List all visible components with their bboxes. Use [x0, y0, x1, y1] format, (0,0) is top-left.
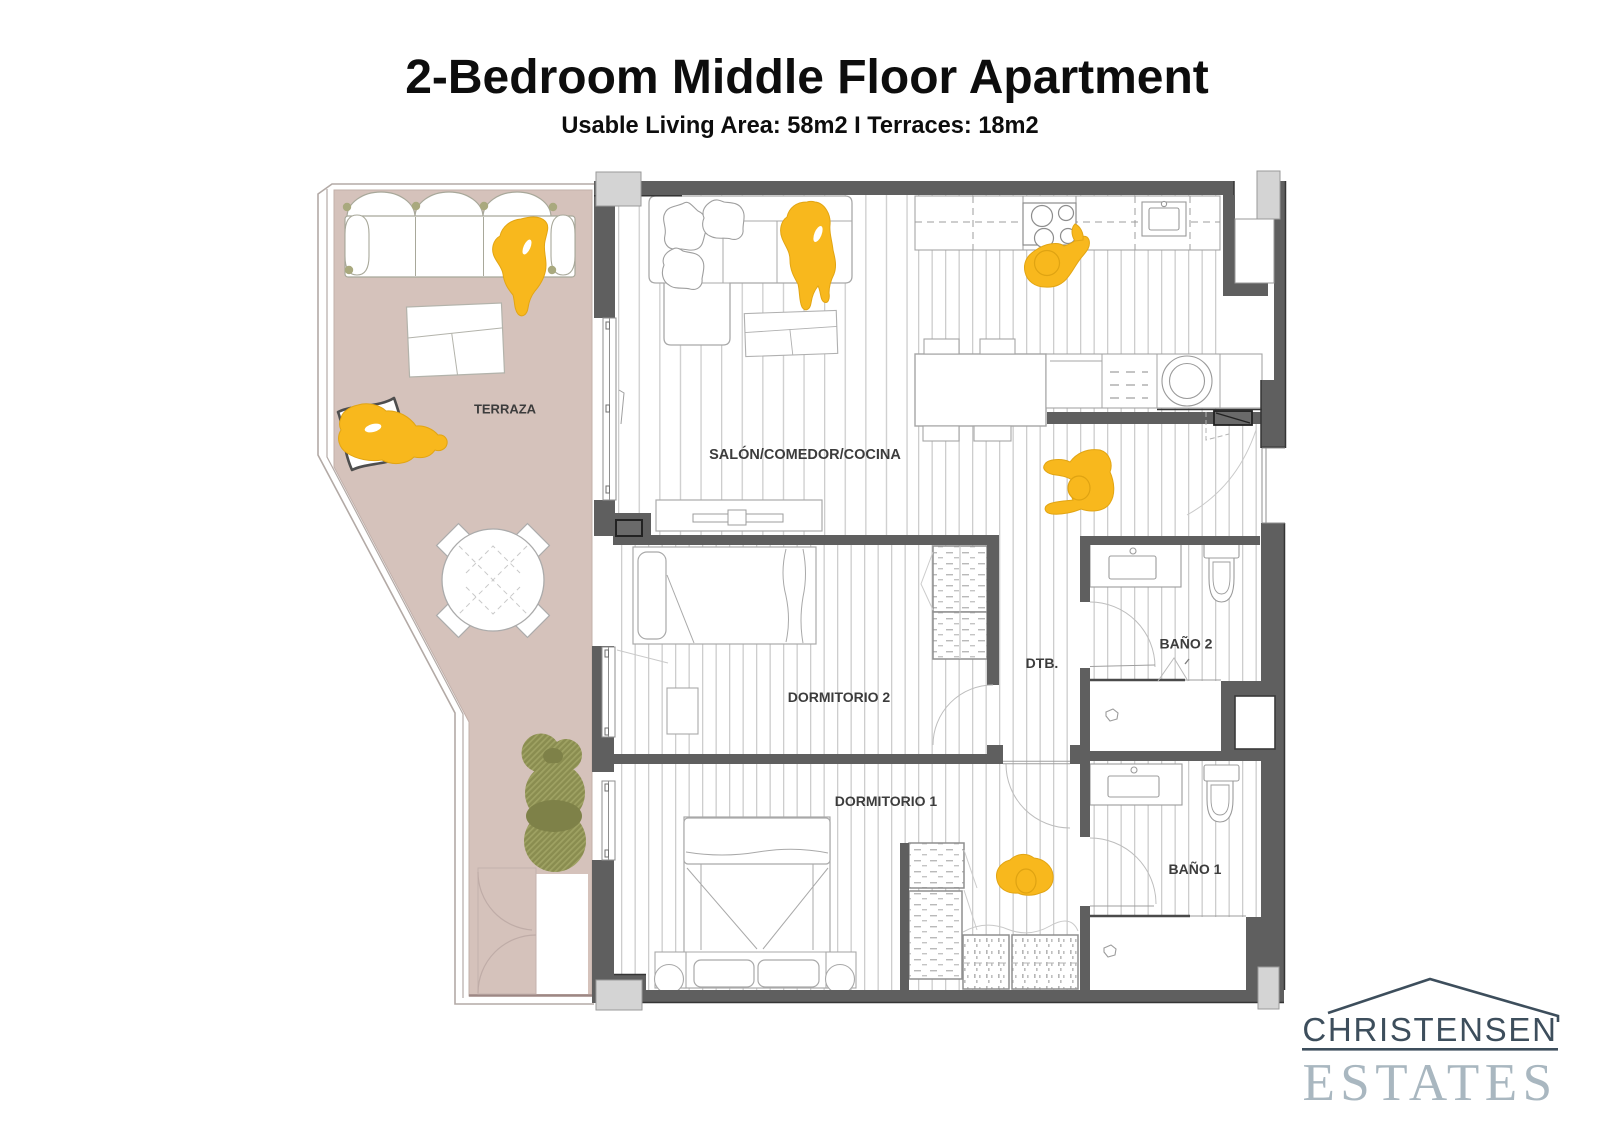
svg-text:ESTATES: ESTATES [1302, 1054, 1557, 1112]
svg-text:TERRAZA: TERRAZA [474, 402, 537, 417]
svg-text:Usable Living Area: 58m2 I Ter: Usable Living Area: 58m2 I Terraces: 18m… [561, 113, 1038, 139]
svg-text:2-Bedroom Middle Floor Apartme: 2-Bedroom Middle Floor Apartment [405, 51, 1209, 104]
svg-text:DTB.: DTB. [1026, 655, 1059, 671]
svg-text:BAÑO 1: BAÑO 1 [1169, 860, 1222, 877]
svg-text:CHRISTENSEN: CHRISTENSEN [1302, 1011, 1557, 1048]
svg-text:BAÑO 2: BAÑO 2 [1160, 635, 1213, 652]
svg-text:DORMITORIO 1: DORMITORIO 1 [835, 793, 938, 809]
svg-text:DORMITORIO 2: DORMITORIO 2 [788, 689, 891, 705]
svg-text:SALÓN/COMEDOR/COCINA: SALÓN/COMEDOR/COCINA [709, 445, 901, 463]
